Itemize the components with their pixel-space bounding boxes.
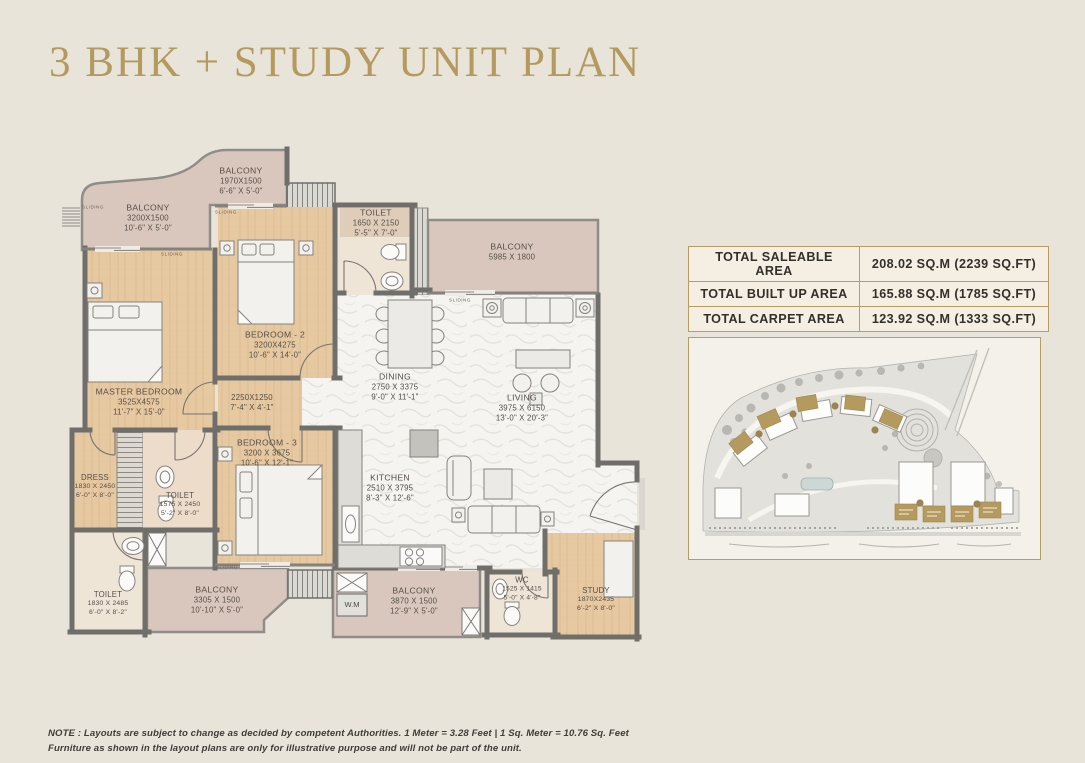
- wc-fixture-icon: [504, 602, 520, 626]
- page-title: 3 BHK + STUDY UNIT PLAN: [49, 38, 641, 87]
- label-study: STUDY 1870X2435 6'-2" X 8'-0": [577, 586, 615, 614]
- nightstand-icon: [87, 283, 102, 298]
- label-toilet-left: TOILET 1830 X 2485 6'-0" X 8'-2": [88, 590, 129, 618]
- area-value: 208.02 SQ.M (2239 SQ.FT): [860, 247, 1049, 282]
- table-row: TOTAL BUILT UP AREA 165.88 SQ.M (1785 SQ…: [689, 282, 1049, 307]
- sliding-tag: SLIDING: [161, 252, 183, 257]
- label-bedroom3: BEDROOM - 3 3200 X 3675 10'-6" X 12'-1": [237, 437, 297, 468]
- brochure-page: { "header": { "title": "3 BHK + STUDY UN…: [0, 0, 1085, 763]
- master-bed-icon: [88, 302, 162, 382]
- nightstand-icon: [218, 541, 232, 555]
- bedroom2-bed-icon: [238, 240, 294, 324]
- bedroom3-bed-icon: [236, 465, 322, 555]
- washbasin-icon: [122, 538, 144, 555]
- label-master-bedroom: MASTER BEDROOM 3525X4575 11'-7" X 15'-0": [96, 386, 183, 417]
- washbasin-icon: [156, 466, 174, 488]
- wc-fixture-icon: [119, 566, 135, 591]
- label-wc: WC 1525 X 1415 5'-0" X 4'-8": [502, 575, 542, 602]
- area-label: TOTAL BUILT UP AREA: [689, 282, 860, 307]
- label-balcony-b3: BALCONY 3305 X 1500 10'-10" X 5'-0": [191, 584, 243, 615]
- sliding-tag: SLIDING: [216, 565, 238, 570]
- coffee-table-icon: [516, 350, 570, 368]
- washbasin-icon: [381, 272, 403, 290]
- nightstand-icon: [218, 447, 232, 461]
- area-value: 123.92 SQ.M (1333 SQ.FT): [860, 307, 1049, 332]
- label-balcony-master: BALCONY 3200X1500 10'-6" X 5'-0": [124, 202, 172, 233]
- site-plan-map: [689, 338, 1039, 558]
- armchair-icon: [447, 456, 471, 500]
- label-toilet-master: TOILET 1575 X 2450 5'-2" X 8'-0": [160, 491, 201, 519]
- sliding-tag: SLIDING: [215, 210, 237, 215]
- plant-icon: [576, 299, 594, 317]
- sofa-icon: [503, 298, 573, 323]
- speaker-icon: [452, 508, 465, 522]
- sliding-tag: SLIDING: [449, 298, 471, 303]
- label-kitchen: KITCHEN 2510 X 3795 8'-3" X 12'-6": [366, 472, 414, 503]
- label-living: LIVING 3975 X 6150 13'-0" X 20'-3": [496, 392, 548, 423]
- area-value: 165.88 SQ.M (1785 SQ.FT): [860, 282, 1049, 307]
- table-row: TOTAL CARPET AREA 123.92 SQ.M (1333 SQ.F…: [689, 307, 1049, 332]
- sofa-icon: [468, 506, 540, 533]
- wc-fixture-icon: [381, 244, 406, 260]
- nightstand-icon: [220, 241, 234, 255]
- area-summary-table: TOTAL SALEABLE AREA 208.02 SQ.M (2239 SQ…: [688, 246, 1049, 332]
- ledge-icon: [62, 208, 80, 226]
- label-balcony-top: BALCONY 1970X1500 6'-6" X 5'-0": [219, 165, 262, 196]
- label-washing-machine: W.M: [345, 600, 360, 610]
- floor-plan: BALCONY 3200X1500 10'-6" X 5'-0" BALCONY…: [60, 130, 645, 645]
- plant-icon: [483, 299, 501, 317]
- table-row: TOTAL SALEABLE AREA 208.02 SQ.M (2239 SQ…: [689, 247, 1049, 282]
- tv-unit-icon: [484, 469, 512, 499]
- speaker-icon: [541, 512, 554, 526]
- label-balcony-kitchen: BALCONY 3870 X 1500 12'-9" X 5'-0": [390, 585, 438, 616]
- site-plan-frame: [688, 337, 1041, 560]
- nightstand-icon: [299, 241, 313, 255]
- sliding-tag: SLIDING: [82, 205, 104, 210]
- note-line-2: Furniture as shown in the layout plans a…: [48, 741, 629, 756]
- area-label: TOTAL CARPET AREA: [689, 307, 860, 332]
- label-bedroom2: BEDROOM - 2 3200X4275 10'-6" X 14'-0": [245, 329, 305, 360]
- label-toilet-top: TOILET 1650 X 2150 5'-5" X 7'-0": [353, 207, 399, 238]
- disclaimer-note: NOTE : Layouts are subject to change as …: [48, 726, 629, 757]
- area-label: TOTAL SALEABLE AREA: [689, 247, 860, 282]
- dining-table-icon: [376, 300, 444, 368]
- label-dining: DINING 2750 X 3375 9'-0" X 11'-1": [371, 371, 418, 402]
- label-passage: 2250X1250 7'-4" X 4'-1": [230, 393, 273, 413]
- label-dress: DRESS 1830 X 2450 6'-0" X 8'-0": [75, 473, 116, 501]
- note-line-1: NOTE : Layouts are subject to change as …: [48, 726, 629, 741]
- label-balcony-living: BALCONY 5985 X 1800: [489, 241, 535, 262]
